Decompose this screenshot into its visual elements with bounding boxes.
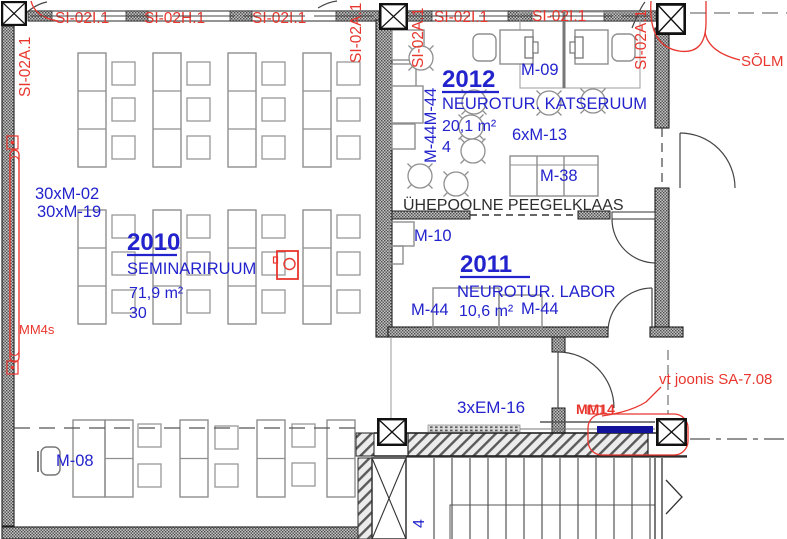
axis-label: SI-02I.1 [252, 10, 306, 27]
room-2012-area: 20,1 m² [442, 118, 497, 135]
left-wall [2, 26, 14, 526]
label-3xem16: 3xEM-16 [457, 398, 525, 417]
label-mm4s: MM4s [19, 322, 55, 337]
workstation [473, 30, 538, 64]
stair-treads [434, 458, 650, 539]
axis-label-vertical: SI-02A.1 [348, 3, 365, 63]
label-m44-vertical: M-44M-44 [422, 88, 440, 163]
ref-note: vt joonis SA-7.08 [659, 371, 772, 388]
middle-wall [376, 20, 392, 337]
label-m09: M-09 [521, 61, 559, 79]
axis-label-vertical: SI-02A.1 [17, 37, 34, 97]
label-m38: M-38 [540, 167, 578, 185]
corridor-south-wall [408, 433, 648, 456]
room-2010-tables [78, 53, 360, 324]
column-top-left [2, 2, 26, 25]
door-swing [558, 352, 614, 408]
room-2012-capacity: 4 [442, 139, 451, 156]
label-m44-a: M-44 [411, 301, 449, 319]
column-top-right [657, 4, 684, 33]
column-top-middle [380, 4, 406, 29]
label-mm14: MM14 [576, 401, 615, 417]
workstation [570, 30, 635, 64]
room-2012-number: 2012 [442, 66, 495, 93]
node-callout: SÕLM 2 [741, 53, 787, 70]
stairs [406, 457, 687, 539]
room-2010-name: SEMINARIRUUM [127, 260, 256, 278]
mm14-element [597, 426, 653, 433]
column-bottom-right [657, 419, 685, 445]
cable-tray [428, 425, 520, 432]
floor-plan-canvas: SI-02I.1 SI-02H.1 SI-02I.1 SI-02I.1 SI-0… [0, 0, 787, 539]
label-30xM-19: 30xM-19 [37, 203, 101, 221]
leader-solm [705, 32, 740, 60]
room-2010-area: 71,9 m² [129, 285, 184, 302]
room-2010-capacity: 30 [129, 305, 147, 322]
label-m08: M-08 [56, 452, 94, 470]
stair-direction-arrow [666, 480, 682, 514]
stair-landing [450, 505, 655, 539]
axis-label-vertical: SI-02A.1 [410, 8, 427, 68]
shaft-x-panel [372, 458, 406, 539]
axis-label: SI-02H.1 [144, 10, 205, 27]
column-bottom-left [378, 419, 405, 445]
label-6xm13: 6xM-13 [512, 126, 567, 144]
room-2011-name: NEUROTUR. LABOR [457, 283, 616, 301]
axis-label: SI-02I.1 [55, 10, 109, 27]
axis-label: SI-02I.1 [434, 9, 488, 26]
axis-label-vertical: SI-02A.1 [633, 10, 650, 70]
label-m44-b: M-44 [521, 300, 559, 318]
label-m10: M-10 [414, 227, 452, 245]
room-2010-number: 2010 [127, 229, 180, 256]
room-2011-area: 10,6 m² [459, 303, 514, 320]
mirror-note: ÜHEPOOLNE PEEGELKLAAS [403, 196, 624, 214]
label-30xM-02: 30xM-02 [35, 185, 99, 203]
door-swing [680, 133, 735, 188]
projector-symbol [274, 251, 299, 279]
door-swing [612, 219, 656, 263]
room-2011-number: 2011 [460, 251, 512, 278]
room-2012-name: NEUROTUR. KATSERUUM [442, 95, 647, 113]
bottom-left-wall [2, 527, 362, 539]
floor-plan-drawing: SI-02I.1 SI-02H.1 SI-02I.1 SI-02I.1 SI-0… [0, 0, 787, 539]
stair-label: 4 [411, 519, 428, 528]
